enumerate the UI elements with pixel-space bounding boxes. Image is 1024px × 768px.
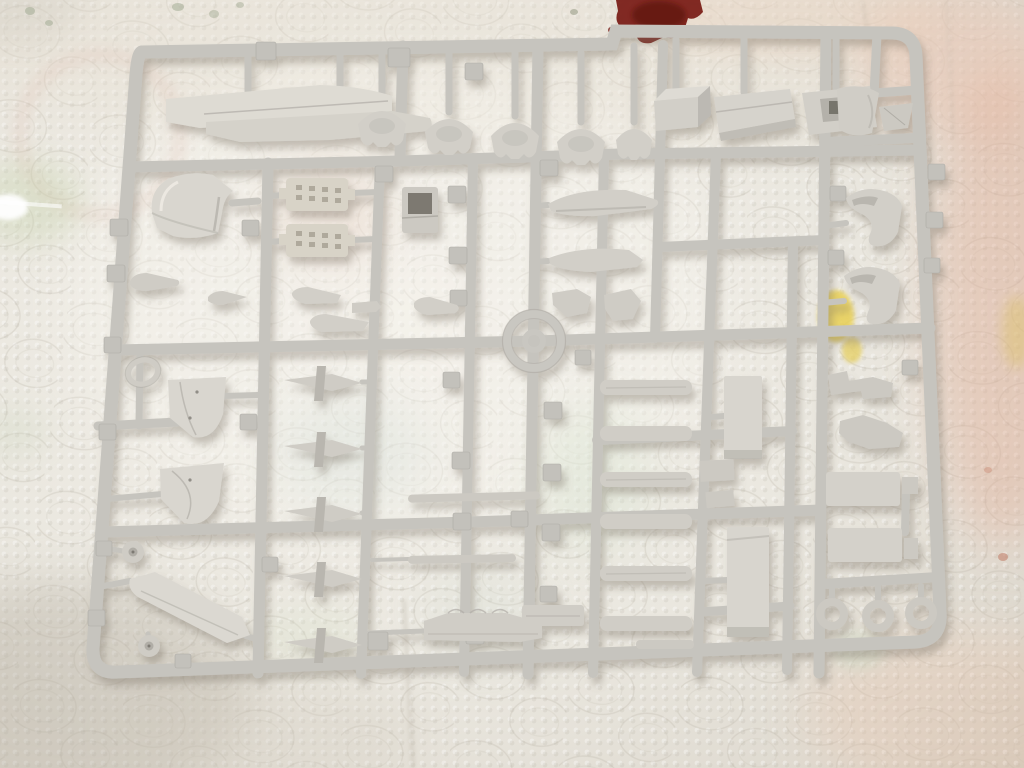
gate-pad [575, 350, 591, 365]
gate-pad [88, 610, 105, 626]
gate-track-2b [352, 239, 376, 240]
hull-box-part-front [654, 97, 698, 131]
gate-pad [452, 452, 470, 469]
small-plate-part-1 [699, 459, 734, 482]
gate-pad [96, 541, 112, 556]
gate-pad [902, 360, 918, 375]
photo-frame [0, 0, 1024, 768]
gate-pad [453, 513, 471, 530]
slab-part-1-edge [724, 450, 762, 459]
gray-speck-5 [236, 2, 244, 8]
track-plate-tab-2b [347, 235, 355, 246]
gate-pad [926, 212, 943, 228]
flap-bar-part-2 [600, 426, 692, 441]
gray-speck-1 [25, 7, 35, 15]
gray-speck-2 [45, 20, 53, 26]
gate-pad [175, 654, 191, 668]
runner-h-topright-a [874, 90, 918, 93]
gate-pad [544, 402, 562, 419]
gate-blade-1 [533, 205, 548, 206]
pastel-blue-stain-midleft [277, 394, 427, 510]
gate-pad [828, 250, 844, 265]
track-plate-tab-1b [347, 189, 355, 200]
tail-shield-dot-1b [188, 416, 191, 419]
gate-pad [511, 511, 528, 527]
gate-pad [110, 219, 128, 236]
dome-shade-3 [502, 130, 528, 146]
gate-pad [924, 258, 940, 273]
gate-pad [543, 464, 561, 481]
gate-pad [443, 372, 460, 388]
seat-box-opening [408, 193, 432, 214]
gate-wing-b [246, 636, 260, 640]
gate-rod-2 [372, 559, 408, 560]
gate-pad [240, 414, 257, 430]
right-slab-part-2 [828, 528, 902, 562]
tail-shield-dot-2 [188, 478, 191, 481]
flap-bar-part-4 [600, 514, 692, 529]
red-speck-right [998, 553, 1008, 561]
tail-shield-dot-1a [195, 390, 198, 393]
right-slab-part-1 [826, 472, 900, 506]
small-plate-part-2 [705, 490, 734, 508]
right-slab-pad-2 [904, 538, 918, 559]
gate-pad [256, 42, 276, 60]
gate-pad [375, 166, 393, 182]
gate-pad [107, 265, 125, 282]
runner-h4-right [822, 577, 938, 584]
model-kit-sprue-photo [0, 0, 1024, 768]
track-plate-tab-2a [279, 234, 287, 245]
gate-shield-1 [223, 395, 258, 396]
track-plate-part-2 [286, 224, 348, 257]
small-bar-part [352, 301, 381, 313]
gate-pad [262, 557, 278, 572]
rod-part-3 [636, 640, 694, 649]
dome-shade-4 [568, 136, 594, 152]
gate-pad [450, 290, 467, 306]
yellow-paint-stain-small [842, 337, 862, 363]
slab-part-2-edge [727, 627, 769, 637]
wheel-center-dot-1 [132, 551, 135, 554]
gate-pad [449, 247, 467, 264]
gate-pad [928, 164, 945, 180]
right-slab-pad-1 [902, 477, 918, 494]
gate-pad [368, 632, 388, 650]
gate-pad [99, 424, 116, 440]
slab-part-2 [727, 527, 769, 637]
gate-crescent-2 [822, 301, 844, 303]
track-plate-tab-1a [279, 188, 287, 199]
gate-pad [448, 186, 466, 203]
gray-speck-4 [209, 10, 219, 18]
gate-pad [540, 160, 558, 176]
runner-v-790 [787, 243, 793, 670]
gate-pad [388, 48, 410, 67]
gate-blade-2 [532, 261, 548, 262]
dome-shade-1 [369, 118, 395, 134]
runner-v-908-stub [905, 490, 906, 532]
runner-h-midright [658, 240, 824, 247]
gate-pad [104, 337, 121, 353]
gate-pad [540, 586, 557, 602]
gate-pad [465, 63, 483, 80]
track-plate-part-1 [286, 178, 348, 211]
red-speck-right-2 [984, 467, 992, 473]
gate-pad [830, 186, 846, 201]
gate-crescent-1 [823, 223, 846, 226]
gray-speck-3 [172, 3, 184, 11]
gate-pad [242, 220, 259, 236]
gate-pad [542, 524, 560, 541]
wheel-center-dot-2 [148, 645, 151, 648]
gray-speck-6 [570, 9, 578, 15]
gate-track-1b [352, 192, 378, 193]
flap-bar-part-6 [600, 616, 692, 631]
runner-v-878-stub [874, 34, 877, 94]
gate-wheel-1 [112, 549, 123, 551]
gate-cowl [232, 201, 258, 203]
corner-fin-part [879, 103, 913, 131]
gate-slab-1 [712, 416, 724, 417]
slab-part-1 [724, 376, 762, 458]
runner-h-topright-b [824, 138, 916, 142]
dome-shade-2 [436, 126, 462, 142]
gate-slab-2 [701, 580, 727, 581]
